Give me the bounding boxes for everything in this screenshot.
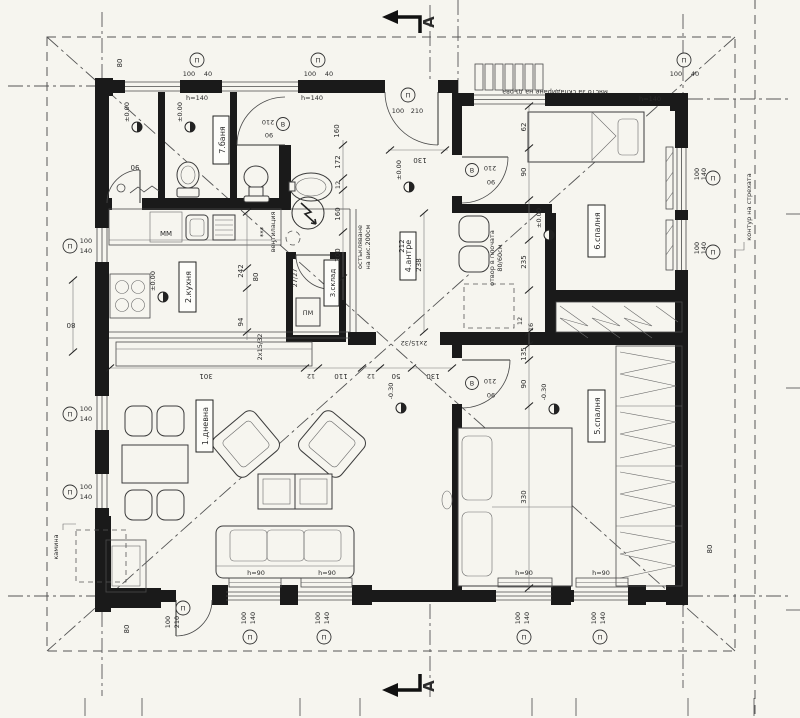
fireplace-note: камина bbox=[52, 534, 60, 559]
window-size: 100 bbox=[304, 70, 316, 78]
armchair bbox=[209, 407, 283, 480]
toilet-icon bbox=[244, 166, 268, 188]
dim-label: 200 bbox=[334, 248, 342, 261]
door-size: 100 bbox=[164, 616, 172, 628]
door-tag-letter: П bbox=[181, 605, 186, 613]
vent-marks: *** bbox=[259, 226, 267, 237]
window-tag-letter: П bbox=[322, 634, 327, 642]
slab-opening-note: 80/60см bbox=[496, 244, 504, 271]
window-size: 100 bbox=[80, 237, 92, 245]
door-tag-letter: П bbox=[406, 92, 411, 100]
dim-label: 135 bbox=[520, 347, 528, 360]
dim-label: 238 bbox=[415, 258, 423, 271]
room-label-bath: 7.баня bbox=[218, 126, 227, 154]
dim-label: 12 bbox=[516, 317, 524, 325]
door-size: 90 bbox=[487, 178, 495, 186]
vent-shaft-icon bbox=[286, 231, 300, 245]
door-size: 210 bbox=[411, 107, 423, 115]
dim-label: 80 bbox=[67, 321, 76, 329]
chair bbox=[459, 246, 489, 272]
level-label: ±0.00 bbox=[149, 271, 157, 291]
dim-label: 90 bbox=[520, 380, 528, 389]
dish-drainer bbox=[213, 215, 235, 240]
window-size: 100 bbox=[314, 612, 322, 624]
dim-label: 90 bbox=[131, 163, 140, 171]
window-size: 100 bbox=[80, 405, 92, 413]
washing-machine-label: ПМ bbox=[303, 309, 314, 317]
door-size: 210 bbox=[484, 377, 496, 385]
chair bbox=[459, 216, 489, 242]
room-label-kitchen: 2.кухня bbox=[184, 271, 193, 303]
dishwasher-label: ММ bbox=[160, 230, 172, 238]
window-tag-letter: П bbox=[711, 175, 716, 183]
level-label: ±0.00 bbox=[395, 160, 403, 180]
steps-note: 2x15/32 bbox=[401, 339, 428, 347]
window-size: 40 bbox=[325, 70, 333, 78]
eaves-note: контур на стрехата bbox=[745, 173, 753, 240]
dim-label: 80 bbox=[116, 59, 124, 68]
room-label-living: 1.дневна bbox=[201, 407, 210, 445]
dim-label: 12 bbox=[307, 372, 315, 380]
dim-label: 62 bbox=[520, 123, 528, 132]
window-tag-letter: П bbox=[711, 249, 716, 257]
window-tag-letter: П bbox=[316, 57, 321, 65]
dim-label: 330 bbox=[520, 490, 528, 503]
window-size: 140 bbox=[523, 612, 531, 624]
dim-label: 130 bbox=[426, 372, 439, 380]
treads-note: 27/27 bbox=[291, 269, 299, 288]
window-size: 140 bbox=[323, 612, 331, 624]
radiator bbox=[666, 220, 673, 270]
window-size: 140 bbox=[80, 493, 92, 501]
lightning-icon bbox=[301, 203, 316, 224]
sill-height: h=90 bbox=[592, 569, 610, 577]
door-size: 90 bbox=[487, 391, 495, 399]
steps-note: 2x15/32 bbox=[256, 334, 264, 361]
sill-height: h=140 bbox=[639, 95, 661, 103]
window-size: 100 bbox=[670, 70, 682, 78]
chair bbox=[157, 406, 184, 436]
dim-label: 16 bbox=[527, 323, 535, 331]
window-size: 40 bbox=[691, 70, 699, 78]
living-furniture bbox=[76, 342, 369, 592]
level-label: ±0.00 bbox=[176, 102, 184, 122]
window-size: 100 bbox=[590, 612, 598, 624]
window-size: 100 bbox=[80, 483, 92, 491]
window-tag-letter: П bbox=[522, 634, 527, 642]
dim-label: 130 bbox=[413, 156, 426, 164]
sill-height: h=90 bbox=[318, 569, 336, 577]
dim-label: 212 bbox=[398, 239, 406, 252]
nook bbox=[459, 216, 514, 328]
firewood-note: място за складиране на дърва bbox=[502, 88, 608, 96]
dim-label: 172 bbox=[334, 155, 342, 168]
window-tag-letter: П bbox=[68, 489, 73, 497]
window-tag-letter: П bbox=[248, 634, 253, 642]
armchair bbox=[295, 407, 369, 480]
window-size: 100 bbox=[183, 70, 195, 78]
section-letter: А bbox=[420, 16, 438, 28]
chair bbox=[125, 490, 152, 520]
dim-label: 160 bbox=[334, 207, 342, 220]
level-label: ±0.00 bbox=[123, 102, 131, 122]
window-tag-letter: П bbox=[598, 634, 603, 642]
window-size: 140 bbox=[599, 612, 607, 624]
dim-label: 50 bbox=[392, 372, 401, 380]
sill-height: h=140 bbox=[301, 94, 323, 102]
dim-label: 80 bbox=[252, 273, 260, 282]
counter bbox=[116, 342, 312, 366]
level-label: ±0.00 bbox=[535, 208, 543, 228]
dim-label: 12 bbox=[334, 181, 342, 189]
dim-label: 235 bbox=[520, 255, 528, 268]
room-labels: 7.баня 2.кухня 3.склад 4.антре 6.спалня … bbox=[179, 116, 605, 452]
nightstand bbox=[442, 491, 452, 509]
glazing-note: остъкляване bbox=[356, 225, 364, 269]
dim-label: 80 bbox=[706, 545, 714, 554]
sill-height: h=90 bbox=[515, 569, 533, 577]
dim-label: 160 bbox=[333, 124, 341, 137]
window-size: 140 bbox=[700, 242, 708, 254]
level-label: -0.30 bbox=[540, 384, 548, 401]
bed-single bbox=[528, 112, 644, 162]
stove bbox=[110, 274, 150, 318]
window-size: 140 bbox=[249, 612, 257, 624]
door-size: 100 bbox=[392, 107, 404, 115]
slab-opening bbox=[464, 284, 514, 328]
door-size: 210 bbox=[262, 118, 274, 126]
tap-icon bbox=[130, 186, 159, 193]
window-size: 140 bbox=[700, 168, 708, 180]
chair bbox=[125, 406, 152, 436]
window-size: 40 bbox=[204, 70, 212, 78]
room-label-storage: 3.склад bbox=[329, 269, 337, 298]
door-tag-letter: В bbox=[470, 167, 474, 175]
window-tag-letter: П bbox=[68, 243, 73, 251]
sill-height: h=140 bbox=[186, 94, 208, 102]
door-tag-letter: В bbox=[281, 121, 285, 129]
window-tag-letter: П bbox=[682, 57, 687, 65]
window-tag-letter: П bbox=[68, 411, 73, 419]
dining-table bbox=[122, 445, 188, 483]
dim-label: 301 bbox=[199, 372, 212, 380]
chair bbox=[157, 490, 184, 520]
floor-drain-icon bbox=[117, 184, 125, 192]
dim-label: 94 bbox=[237, 317, 245, 326]
window-size: 100 bbox=[514, 612, 522, 624]
glazing-note: на вис.200см bbox=[364, 224, 372, 269]
slab-opening-note: отвор в плочата bbox=[488, 230, 496, 286]
firewood-rack bbox=[475, 64, 543, 90]
door-size: 210 bbox=[484, 164, 496, 172]
door-size: 210 bbox=[173, 616, 181, 628]
floor-plan-canvas: 7.баня 2.кухня 3.склад 4.антре 6.спалня … bbox=[0, 0, 800, 718]
dim-label: 12 bbox=[367, 372, 375, 380]
room-label-bedroom6: 6.спалня bbox=[593, 212, 602, 250]
radiator bbox=[666, 147, 673, 209]
dim-label: 242 bbox=[237, 264, 245, 277]
window-tag-letter: П bbox=[195, 57, 200, 65]
floor-plan-scan: 7.баня 2.кухня 3.склад 4.антре 6.спалня … bbox=[0, 0, 800, 718]
door-size: 90 bbox=[265, 131, 273, 139]
dim-label: 80 bbox=[123, 625, 131, 634]
sill-height: h=90 bbox=[247, 569, 265, 577]
level-label: -0.30 bbox=[387, 383, 395, 400]
window-size: 140 bbox=[80, 247, 92, 255]
ventilation-note: вентилация bbox=[269, 212, 277, 253]
dim-label: 90 bbox=[520, 168, 528, 177]
window-size: 140 bbox=[80, 415, 92, 423]
door-tag-letter: В bbox=[470, 380, 474, 388]
dim-label: 110 bbox=[334, 372, 347, 380]
window-size: 100 bbox=[240, 612, 248, 624]
section-letter: А bbox=[420, 680, 438, 692]
room-label-bedroom5: 5.спалня bbox=[593, 397, 602, 435]
